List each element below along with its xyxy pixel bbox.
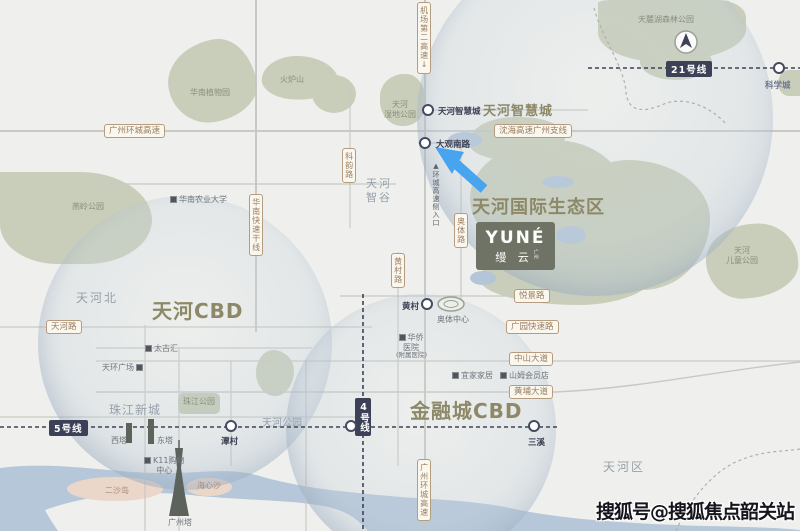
project-city: 广州 (533, 249, 540, 259)
poi-aoti-center-label: 奥体中心 (437, 315, 469, 325)
label-tianhe-north: 天河北 (76, 289, 118, 306)
poi-huaqiao-line3: (附属医院) (396, 352, 426, 360)
compass-icon (675, 31, 697, 53)
canton-tower-icon (169, 440, 189, 516)
label-eco-zone: 天河国际生态区 (472, 193, 605, 219)
poi-ikea: 宜家家居 (452, 371, 493, 381)
label-children-park: 天河 儿童公园 (726, 246, 758, 266)
label-smart-valley-line2: 智谷 (366, 191, 392, 205)
poi-scau-label: 华南农业大学 (179, 195, 227, 204)
project-name-text: 缦 云 (495, 251, 533, 264)
road-pill-shenhai-branch: 沈海高速广州支线 (494, 124, 572, 138)
road-pill-ring-expwy-west: 广州环城高速 (104, 124, 165, 138)
station-kexuecheng (773, 62, 785, 74)
label-tianhe-park: 天河公园 (262, 414, 302, 429)
poi-k11: K11购物 中心 (144, 456, 184, 475)
label-wetland-line2: 湿地公园 (384, 110, 416, 120)
poi-square-icon (144, 457, 151, 464)
poi-haixinsha: 海心沙 (197, 481, 221, 491)
label-tianhe-cbd: 天河CBD (152, 295, 244, 324)
poi-ikea-label: 宜家家居 (461, 371, 493, 380)
road-pill-zhongshan: 中山大道 (509, 352, 553, 366)
road-pill-ring-expwy-south: 广州环城高速 (417, 459, 431, 521)
poi-square-icon (145, 345, 152, 352)
label-smart-valley: 天河 智谷 (366, 177, 392, 205)
station-label-kexuecheng: 科学城 (765, 79, 791, 91)
road-pill-keyun: 科韵路 (342, 148, 356, 183)
label-tianhe-district: 天河区 (603, 458, 645, 475)
label-tianluhu-forest: 天麓湖森林公园 (638, 15, 694, 25)
label-smart-valley-line1: 天河 (366, 177, 392, 191)
project-name: 缦 云广州 (480, 249, 555, 265)
poi-tianhuan-label: 天环广场 (102, 363, 134, 372)
label-financial-cbd: 金融城CBD (410, 395, 523, 424)
station-label-huangcun: 黄村 (402, 300, 419, 312)
poi-canton-tower-label: 广州塔 (168, 518, 192, 528)
poi-square-icon (452, 372, 459, 379)
poi-sams-club: 山姆会员店 (500, 371, 549, 381)
poi-east-tower-label: 东塔 (157, 436, 173, 446)
road-pill-huangpu: 黄埔大道 (509, 385, 553, 399)
station-label-tancun: 潭村 (221, 435, 238, 447)
poi-taikoo-label: 太古汇 (154, 344, 178, 353)
label-zhujiang-new-town: 珠江新城 (109, 401, 161, 418)
poi-sams-label: 山姆会员店 (509, 371, 549, 380)
project-brand: YUNÉ (476, 228, 555, 248)
station-daguan-south (419, 137, 431, 149)
metro-badge-line21: 21号线 (666, 61, 712, 77)
label-yanling-park: 燕岭公园 (72, 202, 104, 212)
stadium-icon (438, 297, 464, 311)
metro-badge-line4: 4号线 (355, 398, 371, 436)
poi-scau: 华南农业大学 (170, 195, 227, 205)
label-wetland-line1: 天河 (384, 100, 416, 110)
poi-k11-label1: K11购物 (153, 456, 184, 465)
location-map: 广州环城高速 沈海高速广州支线 悦景路 广园快速路 中山大道 黄埔大道 天河路 … (0, 0, 800, 531)
label-zhujiang-park: 珠江公园 (183, 397, 215, 407)
road-pill-tianhe-road: 天河路 (46, 320, 82, 334)
watermark: 搜狐号@搜狐焦点韶关站 (596, 497, 794, 524)
road-pill-guangyuan: 广园快速路 (506, 320, 559, 334)
poi-huaqiao-line1: 华侨 (396, 333, 426, 343)
poi-square-icon (399, 334, 406, 341)
poi-huaqiao-hospital: 华侨 医院 (附属医院) (396, 333, 426, 360)
label-wetland-park: 天河 湿地公园 (384, 100, 416, 120)
poi-k11-line2: 中心 (144, 466, 184, 476)
road-pill-aoti: 奥体路 (454, 213, 468, 248)
ring-entrance-label: ▲环城高速侧入口 (431, 162, 441, 227)
poi-square-icon (500, 372, 507, 379)
label-children-park-line2: 儿童公园 (726, 256, 758, 266)
label-botanical-garden: 华南植物园 (190, 88, 230, 98)
label-children-park-line1: 天河 (726, 246, 758, 256)
road-pill-airport-second-expwy: 机场第二高速↓ (417, 2, 431, 74)
poi-k11-line1: K11购物 (144, 456, 184, 466)
station-label-sanxi: 三溪 (528, 436, 545, 448)
road-pill-huangcun-road: 黄村路 (391, 253, 405, 288)
road-pill-yuejing: 悦景路 (514, 289, 550, 303)
highlight-arrow-icon (435, 147, 484, 189)
station-label-zhihuicheng: 天河智慧城 (438, 105, 481, 117)
poi-taikoo-hui: 太古汇 (145, 344, 178, 354)
station-label-daguan-south: 大观南路 (436, 138, 470, 150)
poi-square-icon (136, 364, 143, 371)
label-huolushan: 火炉山 (280, 75, 304, 85)
poi-tianhuan-plaza: 天环广场 (102, 363, 143, 373)
metro-badge-line5: 5号线 (49, 420, 88, 436)
station-zhihuicheng (422, 104, 434, 116)
east-tower-icon (148, 419, 154, 444)
station-unlabeled (345, 420, 357, 432)
project-badge: YUNÉ 缦 云广州 (476, 222, 555, 270)
road-pill-huanan-expwy: 华南快速干线 (249, 194, 263, 256)
poi-ershadao: 二沙岛 (105, 486, 129, 496)
station-sanxi (528, 420, 540, 432)
station-huangcun (421, 298, 433, 310)
poi-square-icon (170, 196, 177, 203)
label-smart-city: 天河智慧城 (483, 100, 553, 119)
poi-huaqiao-label1: 华侨 (408, 333, 424, 342)
poi-west-tower-label: 西塔 (111, 436, 127, 446)
station-tancun (225, 420, 237, 432)
